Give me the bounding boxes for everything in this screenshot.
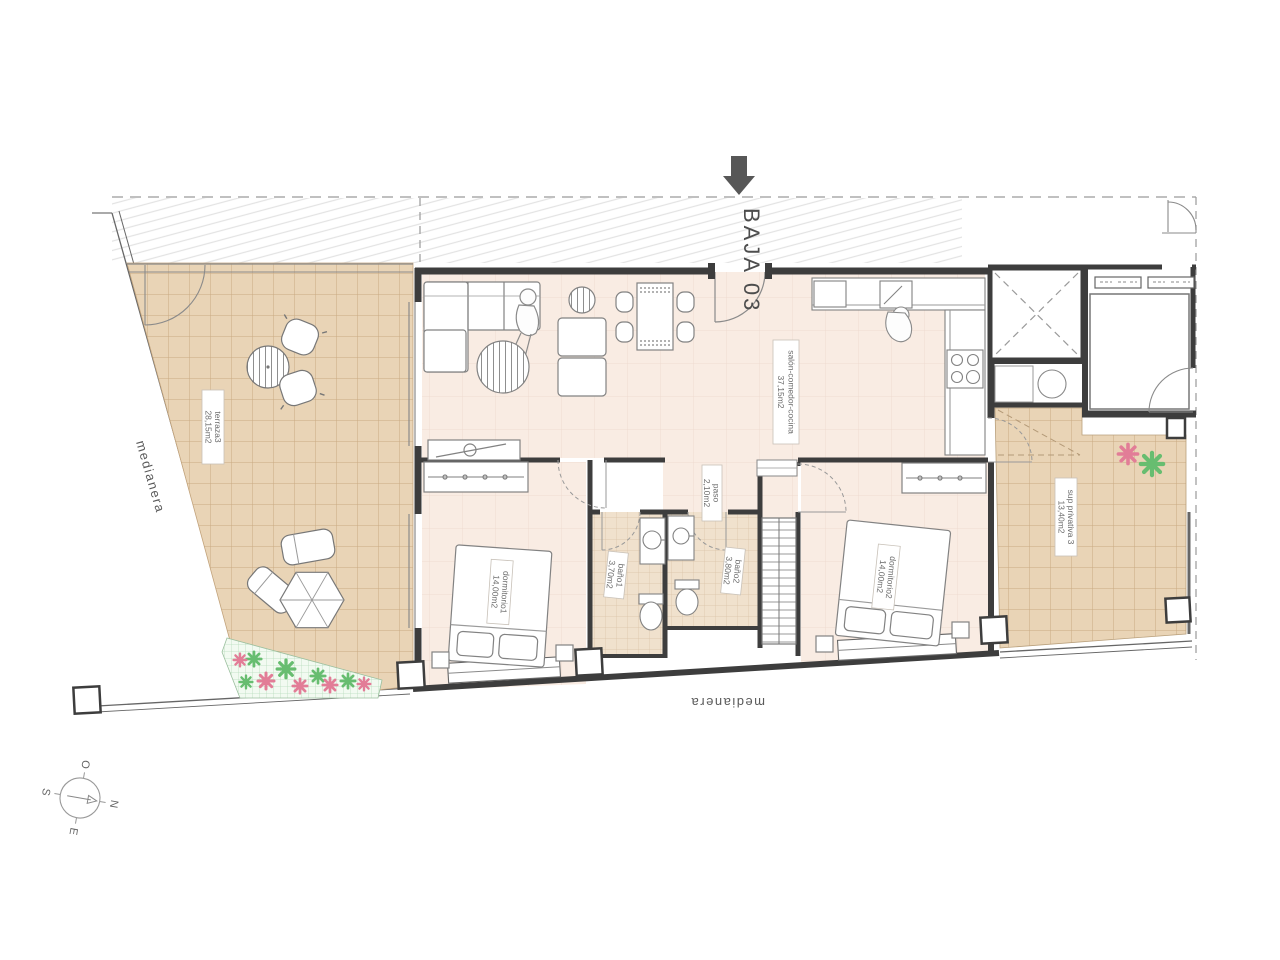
sink-icon xyxy=(880,281,912,308)
compass-east: E xyxy=(67,827,80,836)
medianera-bottom-label: medianera xyxy=(690,695,765,710)
toilet-icon xyxy=(675,580,699,615)
medianera-left-label: medianera xyxy=(133,439,168,515)
rug-icon xyxy=(477,341,529,393)
toilet-icon xyxy=(639,594,663,630)
nightstand-icon xyxy=(556,645,573,661)
wardrobe-icon xyxy=(902,463,986,493)
floor-plan-svg: BAJA 03 medianera medianera terraza3 28,… xyxy=(0,0,1280,960)
cooktop-icon xyxy=(947,350,983,388)
dining-table-icon xyxy=(637,283,673,350)
room-area: 37,15m2 xyxy=(776,375,786,408)
room-name: terraza3 xyxy=(213,411,223,442)
plan-title: BAJA 03 xyxy=(739,208,764,313)
side-table-icon xyxy=(569,287,595,313)
room-area: 28,15m2 xyxy=(204,410,214,443)
stair-room xyxy=(1090,200,1196,412)
room-area: 13,40m2 xyxy=(1057,500,1067,533)
room-label-sup-privativa: sup privativa 3 13,40m2 xyxy=(1055,478,1077,556)
exterior-door xyxy=(1162,200,1196,233)
room-name: sup privativa 3 xyxy=(1066,490,1076,545)
nightstand-icon xyxy=(952,622,969,638)
cabinet-icon xyxy=(814,281,846,307)
compass-north: N xyxy=(107,799,120,809)
wardrobe-icon xyxy=(424,462,528,492)
compass-icon: N E S O xyxy=(33,753,126,842)
room-label-salon: salón-comedor-cocina 37,15m2 xyxy=(773,340,799,444)
room-label-paso: paso 2,10m2 xyxy=(702,465,722,521)
room-name: salón-comedor-cocina xyxy=(787,350,797,434)
entrance-arrow-icon xyxy=(723,156,755,195)
room-name: paso xyxy=(712,484,722,503)
room-label-terraza3: terraza3 28,15m2 xyxy=(202,390,224,464)
tv-console-icon xyxy=(428,440,520,460)
nightstand-icon xyxy=(816,636,833,652)
compass-south: S xyxy=(39,787,52,796)
room-area: 2,10m2 xyxy=(702,479,712,508)
room-label-bano1: baño1 3,70m2 xyxy=(604,551,629,599)
terrace-area xyxy=(127,263,413,690)
floor-plan: BAJA 03 medianera medianera terraza3 28,… xyxy=(0,0,1280,960)
patio-floor xyxy=(995,408,1186,648)
nightstand-icon xyxy=(432,652,449,668)
compass-west: O xyxy=(78,759,91,770)
room-label-bano2: baño2 3,80m2 xyxy=(721,547,746,595)
vestibule xyxy=(995,366,1066,402)
elevator-shaft xyxy=(991,269,1082,359)
room-label-dormitorio1: dormitorio1 14,00m2 xyxy=(487,559,513,624)
